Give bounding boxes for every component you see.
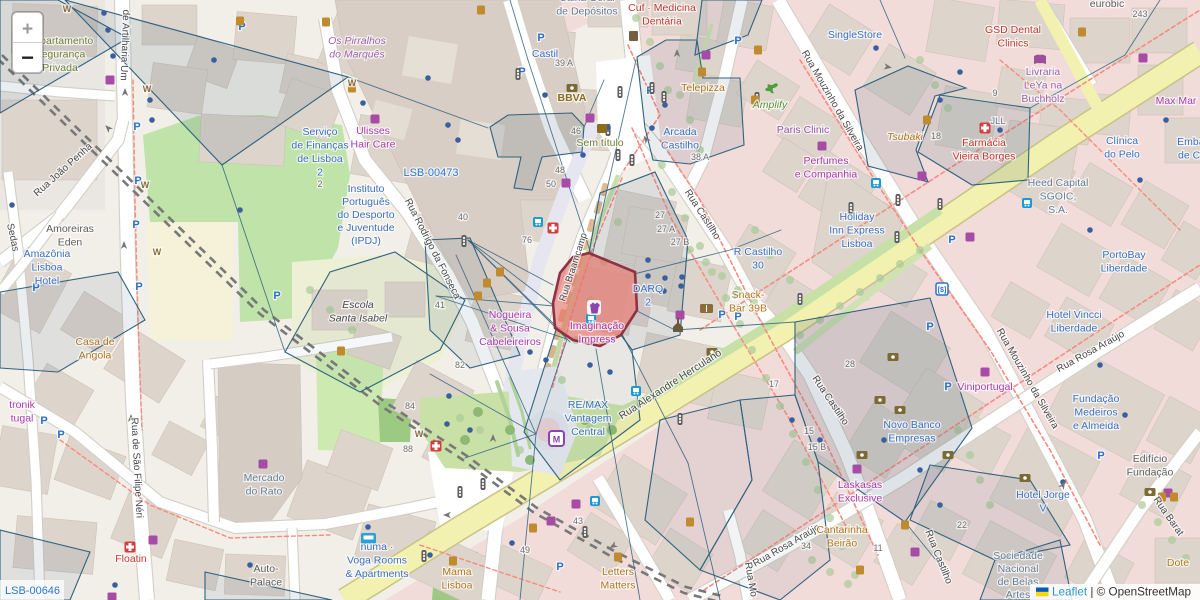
svg-text:M: M — [553, 435, 561, 445]
svg-text:Max Mar: Max Mar — [1156, 95, 1197, 107]
svg-text:JLL: JLL — [990, 116, 1005, 127]
svg-text:40: 40 — [458, 212, 468, 222]
svg-text:W: W — [348, 78, 357, 88]
svg-text:[$]: [$] — [938, 287, 947, 294]
svg-text:P: P — [537, 32, 544, 44]
svg-text:2: 2 — [317, 179, 322, 189]
svg-text:P: P — [135, 281, 142, 293]
svg-text:76: 76 — [522, 235, 532, 245]
svg-text:50: 50 — [546, 179, 556, 189]
svg-text:FundaçãoMedeirose Almeida: FundaçãoMedeirose Almeida — [1073, 393, 1120, 432]
svg-text:W: W — [143, 84, 152, 94]
svg-text:+: + — [22, 19, 33, 40]
svg-text:SingleStore: SingleStore — [828, 29, 882, 41]
svg-text:27 B: 27 B — [671, 237, 690, 247]
svg-text:11: 11 — [873, 543, 882, 553]
svg-text:troniktugal: troniktugal — [9, 399, 35, 425]
svg-text:Casa deAngola: Casa deAngola — [75, 336, 114, 362]
svg-text:17: 17 — [769, 379, 779, 389]
svg-text:27 A: 27 A — [657, 224, 675, 234]
svg-text:49: 49 — [520, 545, 530, 555]
svg-text:28: 28 — [845, 359, 855, 369]
svg-text:MamaLisboa: MamaLisboa — [442, 566, 473, 592]
svg-text:P: P — [948, 234, 955, 246]
svg-text:27: 27 — [655, 210, 665, 220]
svg-text:82: 82 — [455, 360, 465, 370]
svg-text:9: 9 — [992, 88, 997, 98]
svg-text:Auto-Palace: Auto-Palace — [250, 563, 282, 589]
svg-text:Sem título: Sem título — [576, 137, 623, 149]
svg-text:P: P — [133, 121, 140, 133]
svg-text:34: 34 — [801, 541, 811, 551]
svg-text:RE/MAXVantagemCentral: RE/MAXVantagemCentral — [564, 399, 611, 438]
svg-text:84: 84 — [405, 401, 415, 411]
svg-text:LSB-00473: LSB-00473 — [403, 167, 458, 179]
svg-text:22: 22 — [957, 520, 967, 530]
svg-text:LettersMatters: LettersMatters — [600, 566, 635, 592]
svg-text:Floatin: Floatin — [115, 553, 147, 565]
svg-text:P: P — [926, 321, 933, 333]
svg-text:Novo BancoEmpresas: Novo BancoEmpresas — [883, 419, 940, 445]
svg-text:EdifícioFundação: EdifícioFundação — [1127, 453, 1174, 479]
svg-text:W: W — [153, 247, 162, 257]
svg-text:243: 243 — [1132, 9, 1147, 19]
svg-text:18: 18 — [931, 131, 941, 141]
svg-text:43: 43 — [573, 516, 583, 526]
svg-text:38 A: 38 A — [691, 152, 709, 162]
svg-text:W: W — [415, 429, 424, 439]
svg-text:Leaflet | © OpenStreetMap: Leaflet | © OpenStreetMap — [1052, 586, 1191, 599]
svg-text:Tsubaki: Tsubaki — [887, 131, 923, 143]
svg-text:15 B: 15 B — [808, 442, 827, 452]
svg-text:88: 88 — [403, 444, 413, 454]
svg-text:Hotel VincciLiberdade: Hotel VincciLiberdade — [1046, 309, 1101, 335]
svg-text:W: W — [141, 180, 150, 190]
svg-text:Dote: Dote — [1167, 557, 1189, 569]
svg-text:BBVA: BBVA — [558, 92, 587, 104]
svg-text:39 A: 39 A — [555, 58, 573, 68]
svg-text:P: P — [944, 381, 951, 393]
svg-text:Telepizza: Telepizza — [681, 82, 725, 94]
svg-text:LivrariaLeYa naBuchholz: LivrariaLeYa naBuchholz — [1021, 66, 1064, 105]
svg-text:41: 41 — [435, 300, 445, 310]
svg-text:P: P — [273, 290, 280, 302]
svg-text:Caixa Geralde Depósitos: Caixa Geralde Depósitos — [556, 0, 617, 18]
svg-text:46: 46 — [571, 126, 581, 136]
svg-text:P: P — [40, 415, 47, 427]
svg-text:Embaide Ch: Embaide Ch — [1177, 136, 1200, 162]
svg-text:Snack-Bar 39B: Snack-Bar 39B — [729, 289, 767, 315]
svg-text:Paris Clinic: Paris Clinic — [777, 124, 830, 136]
svg-text:Mercadodo Rato: Mercadodo Rato — [244, 472, 285, 498]
svg-text:P: P — [57, 429, 64, 441]
svg-text:P: P — [132, 219, 139, 231]
svg-text:15: 15 — [804, 426, 814, 436]
svg-text:eurobic: eurobic — [1090, 0, 1124, 10]
svg-text:W: W — [63, 4, 72, 14]
svg-text:ArcadaCastilho: ArcadaCastilho — [661, 126, 699, 152]
svg-text:P: P — [734, 35, 741, 47]
svg-text:P: P — [718, 309, 725, 321]
svg-text:Perfumese Companhia: Perfumese Companhia — [795, 155, 858, 181]
svg-text:Os Pirralhosdo Marquês: Os Pirralhosdo Marquês — [328, 35, 387, 61]
svg-text:−: − — [21, 45, 34, 70]
svg-text:48: 48 — [555, 165, 565, 175]
svg-text:LSB-00646: LSB-00646 — [5, 585, 60, 597]
svg-text:P: P — [1097, 450, 1104, 462]
svg-text:UlissesHair Care: UlissesHair Care — [351, 125, 396, 151]
svg-text:LaskasasExclusive: LaskasasExclusive — [838, 479, 883, 505]
svg-text:Viniportugal: Viniportugal — [957, 381, 1012, 393]
svg-text:P: P — [556, 561, 563, 573]
svg-text:PortoBayLiberdade: PortoBayLiberdade — [1101, 249, 1148, 275]
svg-text:Amplify: Amplify — [752, 99, 788, 111]
svg-text:Clínicado Pelo: Clínicado Pelo — [1104, 135, 1140, 161]
